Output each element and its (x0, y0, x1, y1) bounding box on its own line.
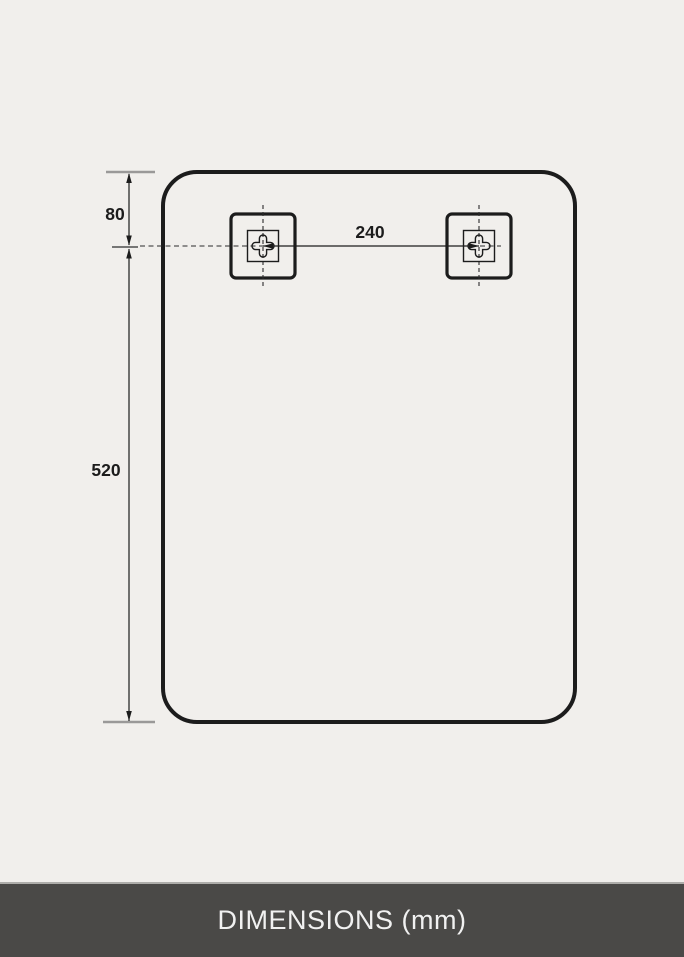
arrowhead-up-520 (126, 249, 132, 259)
mirror-dimension-drawing: 240 80 520 (0, 0, 684, 882)
dimension-diagram-page: 240 80 520 DIMENSIONS (mm) (0, 0, 684, 957)
mirror-outline (163, 172, 575, 722)
dimension-label-spacing: 240 (355, 222, 384, 242)
dimension-label-top-offset: 80 (105, 204, 125, 224)
footer-bar: DIMENSIONS (mm) (0, 882, 684, 957)
footer-title: DIMENSIONS (mm) (218, 905, 467, 936)
arrowhead-down-520 (126, 711, 132, 721)
dimension-label-bottom-height: 520 (91, 460, 120, 480)
arrowhead-up-80 (126, 173, 132, 183)
arrowhead-down-80 (126, 236, 132, 246)
